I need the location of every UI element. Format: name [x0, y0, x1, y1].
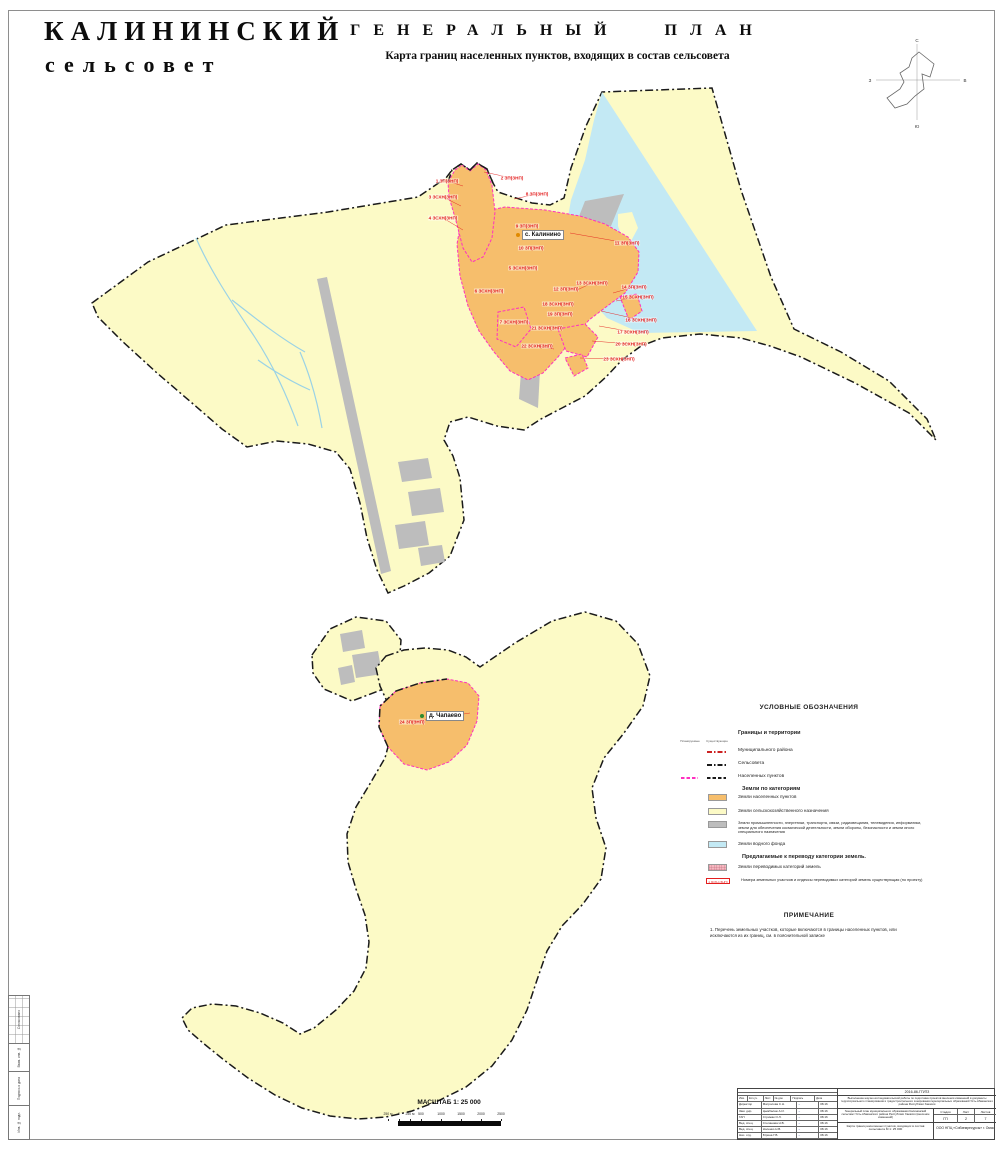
side-stamp-label: Инв. № подл. — [17, 1112, 21, 1132]
stamp-role: Вед. спец. — [738, 1121, 762, 1126]
industrial-building — [395, 521, 429, 549]
leader-line — [514, 194, 537, 199]
stamp-sign: ~ — [797, 1133, 819, 1138]
note-block: ПРИМЕЧАНИЕ 1. Перечень земельных участко… — [680, 912, 938, 939]
note-title: ПРИМЕЧАНИЕ — [680, 912, 938, 919]
compass-east-label: В — [963, 78, 966, 83]
legend-category-rows: Земли населенных пунктовЗемли сельскохоз… — [680, 794, 938, 855]
scale-title: МАСШТАБ 1: 25 000 — [383, 1099, 515, 1106]
stamp-sign: ~ — [797, 1115, 819, 1120]
stamp-header-cell: Лист — [764, 1096, 774, 1101]
scale-tick-mark — [481, 1119, 482, 1121]
project-description: Выполнение научно-исследовательской рабо… — [838, 1096, 996, 1109]
compass-south-label: Ю — [915, 124, 920, 129]
stamp-role: Зам. дир. — [738, 1109, 762, 1114]
legend: УСЛОВНЫЕ ОБОЗНАЧЕНИЯ Границы и территори… — [680, 702, 938, 902]
legend-row-label: Сельсовета — [738, 761, 764, 766]
legend-row-label: Земли сельскохозяйственного назначения — [738, 808, 930, 815]
sheet-title: Карта границ населенных пунктов, входящи… — [838, 1123, 934, 1139]
legend-line-sample — [681, 777, 698, 779]
stamp-name: Юрина Г.В. — [762, 1133, 798, 1138]
stamp-name: Носенко Н.В. — [762, 1127, 798, 1132]
legend-boundary-row: Муниципального района — [680, 746, 938, 759]
legend-row-label: Земли водного фонда — [738, 841, 930, 848]
side-stamp-cell: Инв. № подл. — [9, 1106, 29, 1139]
stamp-date: 08.16 — [819, 1115, 837, 1120]
compass-west-label: З — [869, 78, 872, 83]
stamp-header-cell: Изм. — [738, 1096, 748, 1101]
scale-block: МАСШТАБ 1: 25 000 250 м0250 м50010001500… — [383, 1099, 515, 1126]
legend-transfer-rows: Земли переводимых категорий земель1 ЗСХН… — [680, 864, 938, 891]
stamp-role: ГАП — [738, 1115, 762, 1120]
stamp-name: Цымбалюк А.И. — [762, 1109, 798, 1114]
stamp-date: 08.16 — [819, 1121, 837, 1126]
scale-tick-label: 250 м — [406, 1112, 415, 1116]
side-stamp: СогласованоВзам. инв. №Подпись и датаИнв… — [8, 995, 30, 1140]
scale-tick-mark — [421, 1119, 422, 1121]
stamp-date: 08.16 — [819, 1127, 837, 1132]
document-number: 2016-86-ГП/ПЗ — [838, 1089, 996, 1096]
note-text: 1. Перечень земельных участков, которые … — [710, 927, 915, 939]
legend-category-row: Земли населенных пунктов — [680, 794, 938, 801]
side-stamp-cell: Подпись и дата — [9, 1072, 29, 1106]
stamp-header-cell: Подпись — [791, 1096, 815, 1101]
stage-value: ГП — [934, 1115, 958, 1123]
legend-color-swatch — [708, 821, 727, 828]
scale-tick-mark — [461, 1119, 462, 1121]
stamp-role: Вед. спец. — [738, 1127, 762, 1132]
scale-tick-mark — [501, 1119, 502, 1121]
scale-tick-mark — [388, 1119, 389, 1121]
legend-categories-heading: Земли по категориям — [742, 786, 800, 792]
organization: ООО НПЦ «Сибземресурсы» г. Омск — [934, 1123, 996, 1139]
title-block-row4: Карта границ населенных пунктов, входящи… — [838, 1123, 996, 1139]
legend-category-row: Земли водного фонда — [680, 841, 938, 848]
legend-color-swatch — [708, 864, 727, 871]
stage-table: Стадия Лист Листов ГП 2 7 — [934, 1109, 996, 1122]
stamp-name: Матросова С.Н. — [762, 1102, 798, 1107]
title-block-signatures: Изм.Кол.уч.Лист№ док.ПодписьДатаДиректор… — [738, 1089, 838, 1139]
scale-tick-mark — [410, 1119, 411, 1121]
stamp-date: 08.16 — [819, 1109, 837, 1114]
stamp-date: 08.16 — [819, 1133, 837, 1138]
legend-color-swatch — [708, 841, 727, 848]
legend-boundary-row: Населенных пунктов — [680, 772, 938, 785]
legend-row-label: Населенных пунктов — [738, 774, 784, 779]
legend-category-row: Земли промышленности, энергетики, трансп… — [680, 821, 938, 835]
legend-col-planned: Планируемые — [680, 739, 700, 743]
stamp-sign: ~ — [797, 1127, 819, 1132]
scale-tick-labels: 250 м0250 м5001000150020002500 — [383, 1112, 515, 1120]
side-stamp-cell: Согласовано — [9, 996, 29, 1044]
legend-line-sample — [707, 764, 726, 766]
legend-col-existing: Существующие — [705, 739, 729, 743]
legend-row-label: Земли переводимых категорий земель — [738, 864, 930, 871]
scale-tick-mark — [441, 1119, 442, 1121]
side-stamp-label: Согласовано — [17, 1010, 21, 1029]
legend-row-label: Номера земельных участков и индексы пере… — [741, 878, 933, 885]
legend-boundary-row: Сельсовета — [680, 759, 938, 772]
stamp-header-cell: Кол.уч. — [748, 1096, 764, 1101]
stamp-role: Нач. отд. — [738, 1133, 762, 1138]
stamp-sign: ~ — [797, 1109, 819, 1114]
stamp-date: 08.16 — [819, 1102, 837, 1107]
title-block: Изм.Кол.уч.Лист№ док.ПодписьДатаДиректор… — [737, 1088, 995, 1140]
stamp-sign: ~ — [797, 1121, 819, 1126]
side-stamp-label: Взам. инв. № — [17, 1047, 21, 1067]
stamp-name: Стрижак О.Л. — [762, 1115, 798, 1120]
legend-line-sample — [707, 777, 726, 779]
title-block-right: 2016-86-ГП/ПЗ Выполнение научно-исследов… — [838, 1089, 996, 1139]
scale-tick-label: 250 м — [384, 1112, 393, 1116]
legend-transfer-heading: Предлагаемые к переводу категории земель… — [742, 854, 866, 860]
stamp-signature-row: Нач. отд.Юрина Г.В.~08.16 — [738, 1133, 837, 1139]
scale-tick-label: 500 — [418, 1112, 424, 1116]
stamp-header-cell: Дата — [815, 1096, 837, 1101]
stamp-sign: ~ — [797, 1102, 819, 1107]
stamp-role: Директор — [738, 1102, 762, 1107]
legend-color-swatch — [708, 808, 727, 815]
map-canvas — [0, 0, 1004, 1157]
legend-transfer-row: Земли переводимых категорий земель — [680, 864, 938, 871]
compass-north-label: С — [915, 38, 919, 43]
scale-tick-label: 2000 — [477, 1112, 485, 1116]
legend-code-sample: 1 ЗСХН (ЗНП) — [706, 878, 730, 885]
scale-tick-mark — [399, 1119, 400, 1121]
legend-row-label: Муниципального района — [738, 748, 793, 753]
legend-category-row: Земли сельскохозяйственного назначения — [680, 808, 938, 815]
sheets-value: 7 — [975, 1115, 996, 1123]
legend-boundaries-heading: Границы и территории — [738, 730, 801, 736]
wind-rose: С Ю З В — [862, 34, 972, 129]
industrial-building — [338, 665, 355, 685]
industrial-building — [408, 488, 444, 516]
legend-line-sample — [707, 751, 726, 753]
legend-transfer-code-row: 1 ЗСХН (ЗНП)Номера земельных участков и … — [680, 878, 938, 885]
industrial-building — [398, 458, 432, 482]
stamp-name: Степанова Н.В. — [762, 1121, 798, 1126]
scale-bar — [398, 1121, 501, 1126]
scale-tick-label: 0 — [398, 1112, 400, 1116]
scale-tick-label: 1500 — [457, 1112, 465, 1116]
side-stamp-cell: Взам. инв. № — [9, 1044, 29, 1072]
legend-row-label: Земли населенных пунктов — [738, 794, 930, 801]
scale-tick-label: 2500 — [497, 1112, 505, 1116]
legend-row-label: Земли промышленности, энергетики, трансп… — [738, 821, 930, 835]
scale-tick-label: 1000 — [437, 1112, 445, 1116]
side-stamp-label: Подпись и дата — [17, 1077, 21, 1100]
sheet-value: 2 — [958, 1115, 975, 1123]
object-description: Генеральный план муниципального образова… — [838, 1109, 934, 1122]
legend-color-swatch — [708, 794, 727, 801]
plan-sheet: КАЛИНИНСКИЙ сельсовет ГЕНЕРАЛЬНЫЙ ПЛАН К… — [0, 0, 1004, 1157]
title-block-row3: Генеральный план муниципального образова… — [838, 1109, 996, 1123]
stamp-header-cell: № док. — [774, 1096, 792, 1101]
legend-boundary-rows: Муниципального районаСельсоветаНаселенны… — [680, 746, 938, 785]
legend-title: УСЛОВНЫЕ ОБОЗНАЧЕНИЯ — [680, 704, 938, 711]
